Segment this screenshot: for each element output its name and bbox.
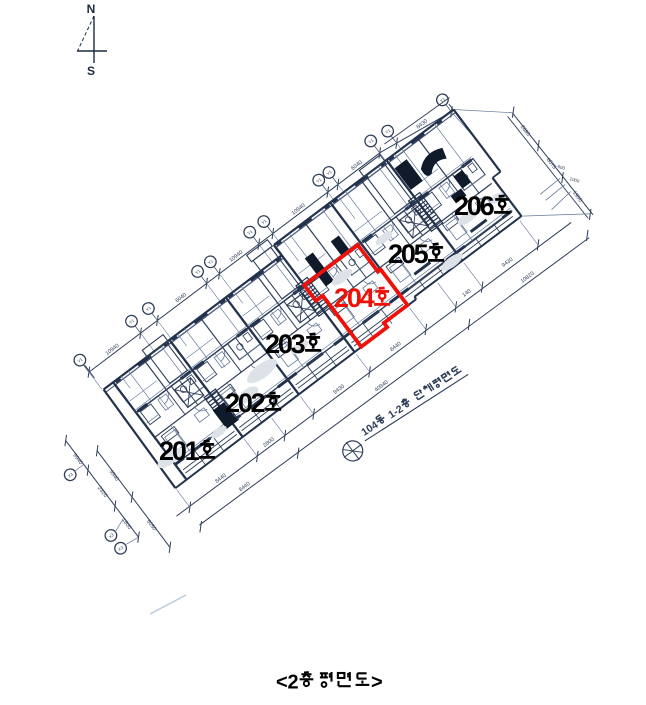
svg-text:2: 2 <box>288 672 299 694</box>
svg-text:205: 205 <box>388 239 429 269</box>
svg-text:203: 203 <box>265 329 306 359</box>
svg-text:<: < <box>276 672 288 694</box>
svg-text:S: S <box>87 64 95 78</box>
svg-text:N: N <box>87 2 96 16</box>
svg-text:206: 206 <box>454 191 495 221</box>
svg-text:>: > <box>371 672 383 694</box>
svg-text:202: 202 <box>225 388 265 418</box>
svg-text:204: 204 <box>334 283 375 313</box>
svg-text:201: 201 <box>159 436 200 466</box>
